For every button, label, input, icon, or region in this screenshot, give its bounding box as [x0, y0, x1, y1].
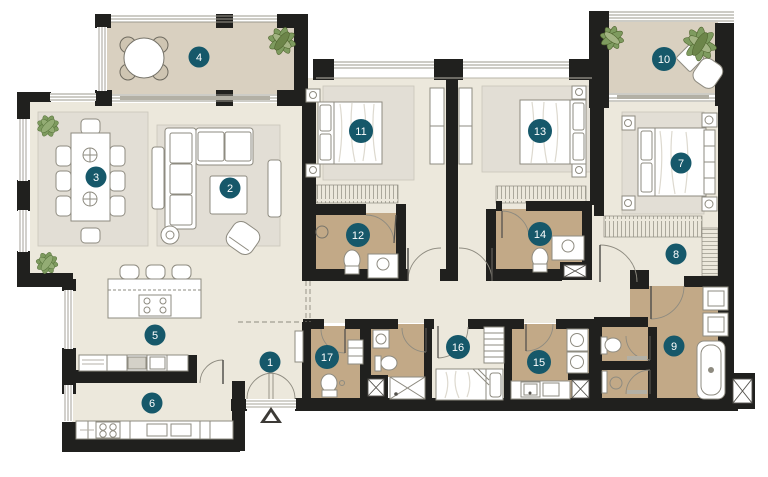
svg-text:2: 2	[227, 183, 233, 195]
svg-text:6: 6	[149, 398, 155, 410]
svg-text:15: 15	[533, 357, 545, 369]
svg-text:12: 12	[352, 230, 364, 242]
svg-text:16: 16	[452, 342, 464, 354]
svg-text:8: 8	[673, 249, 679, 261]
svg-text:5: 5	[152, 330, 158, 342]
svg-text:13: 13	[534, 126, 546, 138]
svg-text:17: 17	[321, 352, 333, 364]
svg-text:7: 7	[678, 158, 684, 170]
svg-text:1: 1	[267, 357, 273, 369]
svg-text:9: 9	[671, 341, 677, 353]
svg-text:10: 10	[658, 54, 670, 66]
svg-text:3: 3	[93, 172, 99, 184]
svg-text:4: 4	[196, 52, 202, 64]
svg-text:11: 11	[355, 126, 366, 138]
svg-text:14: 14	[534, 229, 546, 241]
